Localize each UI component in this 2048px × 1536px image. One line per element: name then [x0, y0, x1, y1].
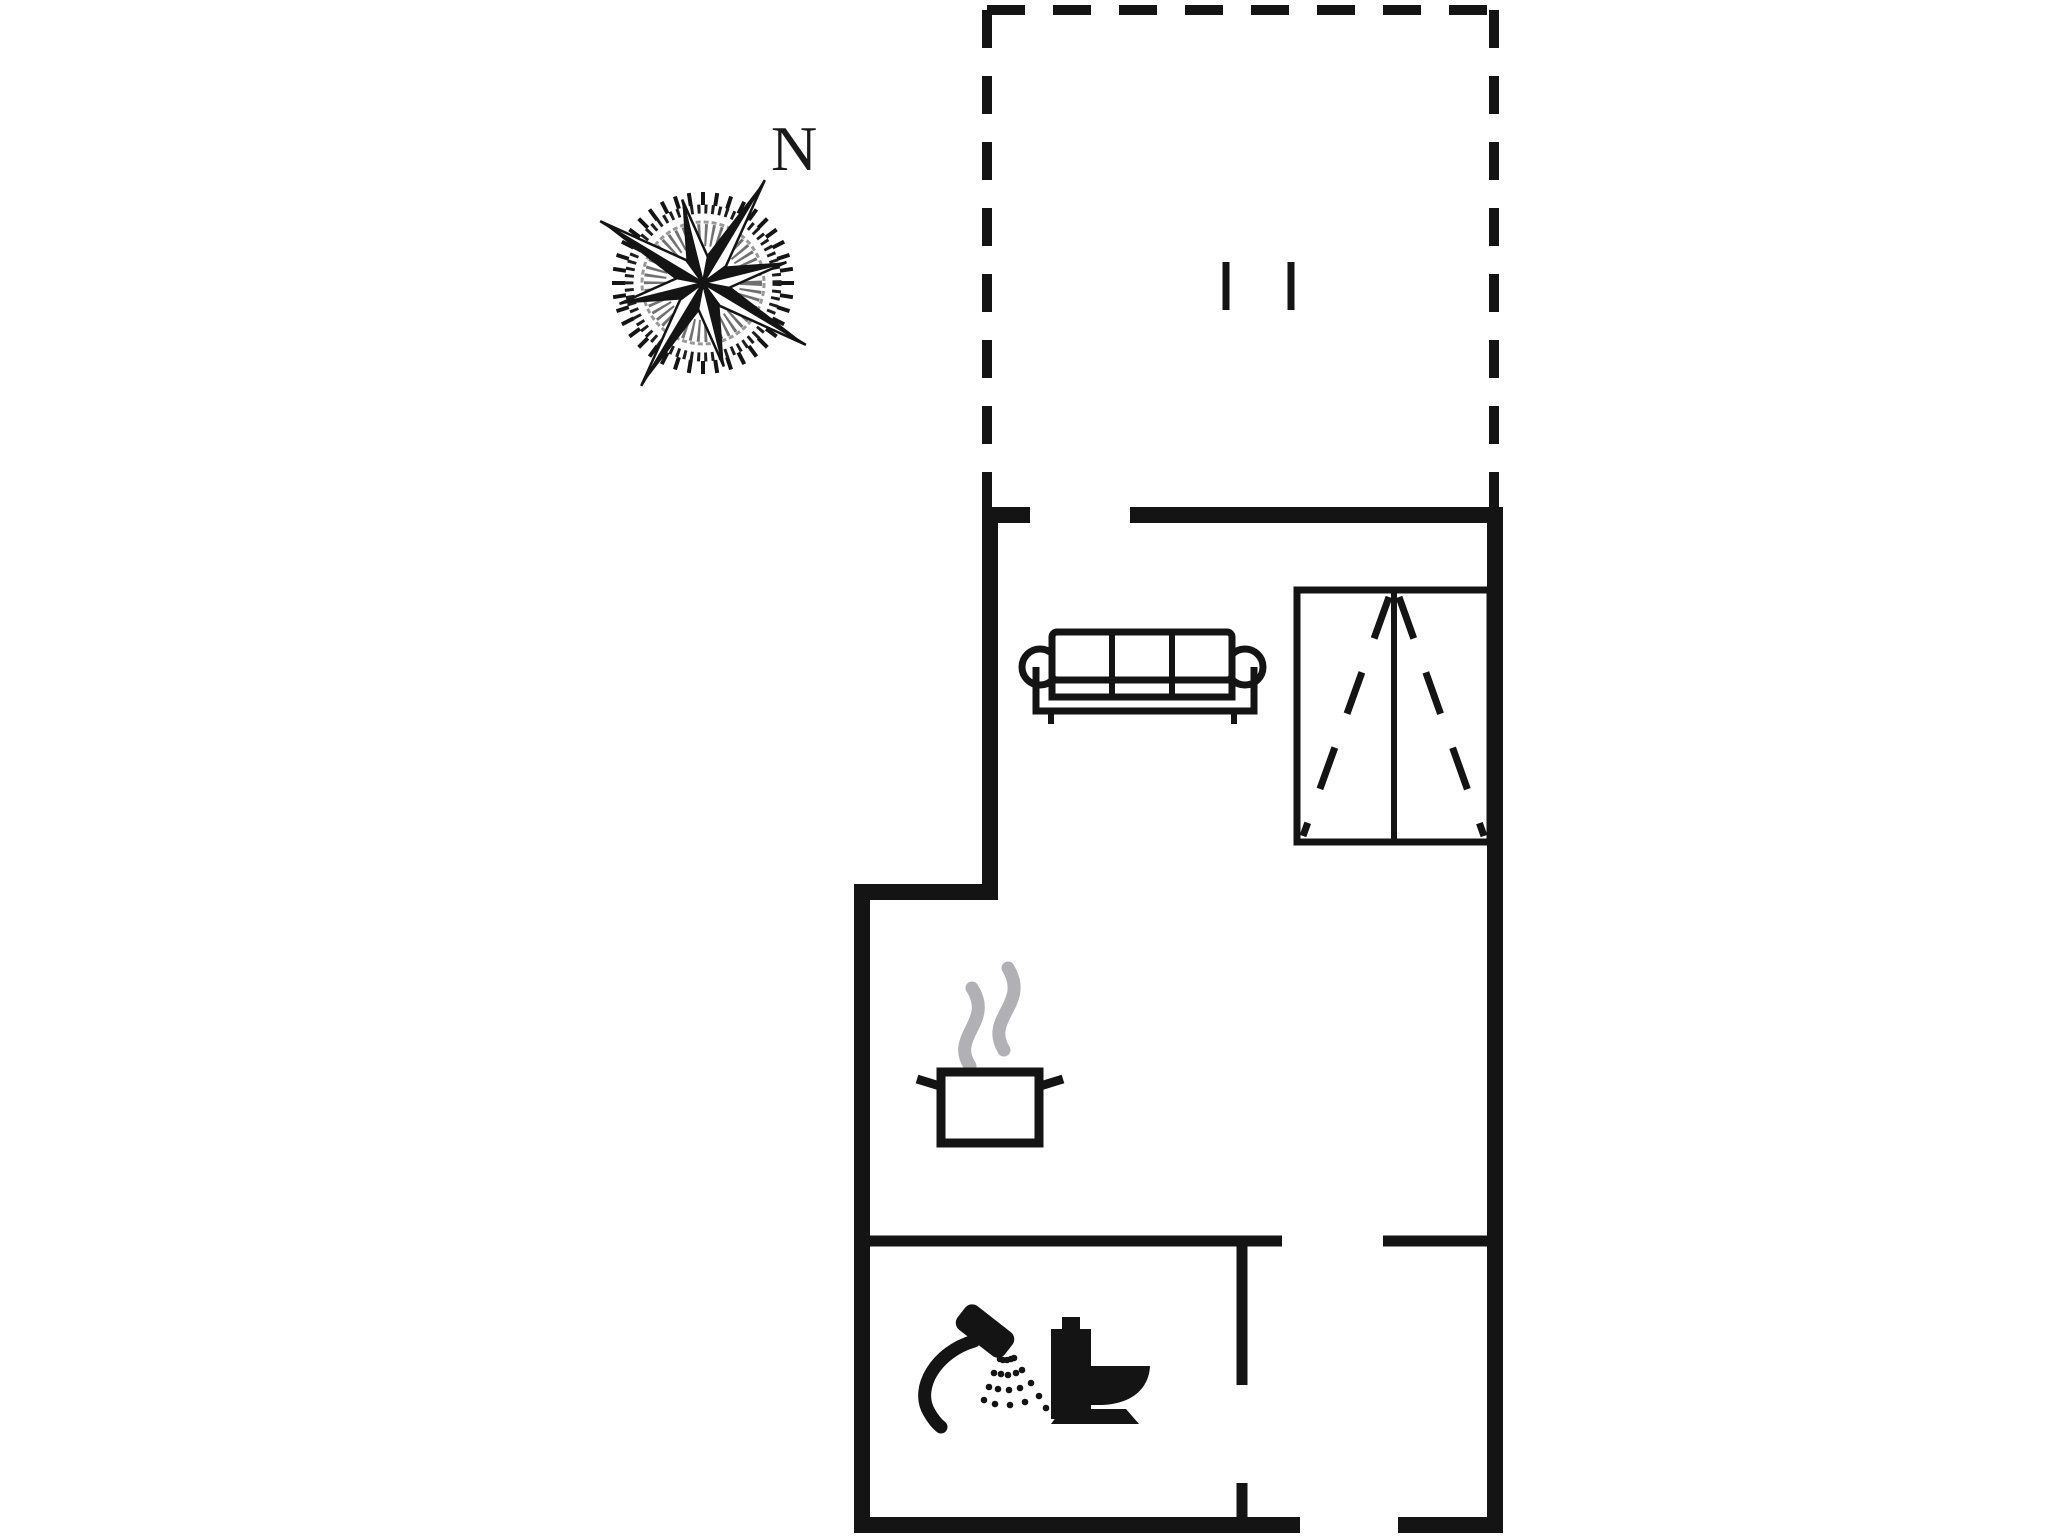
wardrobe-icon — [1297, 590, 1490, 842]
steam-wisp-right — [999, 968, 1014, 1050]
steam-icon — [965, 968, 1014, 1066]
shower-icon — [925, 1301, 1050, 1427]
sofa-icon — [1022, 632, 1263, 724]
toilet-lid-button — [1062, 1317, 1080, 1331]
toilet-icon — [1051, 1317, 1150, 1424]
steam-wisp-left — [965, 988, 979, 1066]
sofa-seat — [1052, 680, 1232, 697]
wardrobe-door-swing-right — [1399, 597, 1484, 836]
toilet-cistern — [1051, 1329, 1091, 1419]
interior-walls — [862, 1236, 1495, 1530]
terrace-outline — [987, 10, 1494, 507]
pot-body — [941, 1072, 1039, 1143]
sofa-backrest — [1052, 632, 1232, 680]
shower-spray-dots — [981, 1355, 1050, 1412]
shower-hose — [925, 1341, 974, 1427]
terrace-marker-ticks — [1226, 262, 1291, 310]
floor-plan: N — [0, 0, 2048, 1536]
wardrobe-door-swing-left — [1303, 597, 1389, 836]
toilet-bowl — [1091, 1366, 1150, 1405]
toilet-base — [1051, 1409, 1139, 1424]
north-label: N — [771, 113, 817, 184]
floor-plan-drawing: N — [0, 0, 2048, 1536]
compass-rose: N — [591, 113, 818, 395]
cooking-pot-icon — [917, 968, 1063, 1143]
